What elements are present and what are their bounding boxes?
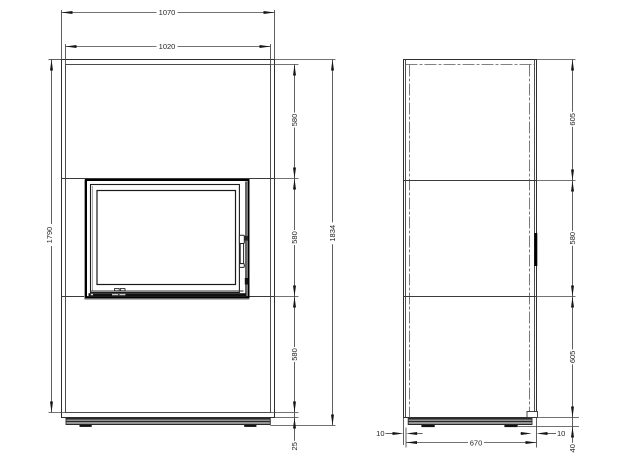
svg-text:1020: 1020 — [159, 42, 176, 51]
svg-text:580: 580 — [290, 348, 299, 361]
svg-text:1070: 1070 — [159, 8, 176, 17]
svg-text:25: 25 — [290, 442, 299, 450]
svg-text:40: 40 — [568, 444, 577, 452]
svg-text:1834: 1834 — [328, 225, 337, 242]
svg-text:580: 580 — [290, 114, 299, 127]
svg-text:10: 10 — [376, 429, 384, 438]
svg-text:10: 10 — [557, 429, 565, 438]
svg-text:580: 580 — [290, 231, 299, 244]
svg-text:605: 605 — [568, 351, 577, 364]
svg-text:580: 580 — [568, 232, 577, 245]
svg-text:1790: 1790 — [45, 227, 54, 244]
svg-text:670: 670 — [470, 439, 483, 448]
svg-text:605: 605 — [568, 113, 577, 126]
